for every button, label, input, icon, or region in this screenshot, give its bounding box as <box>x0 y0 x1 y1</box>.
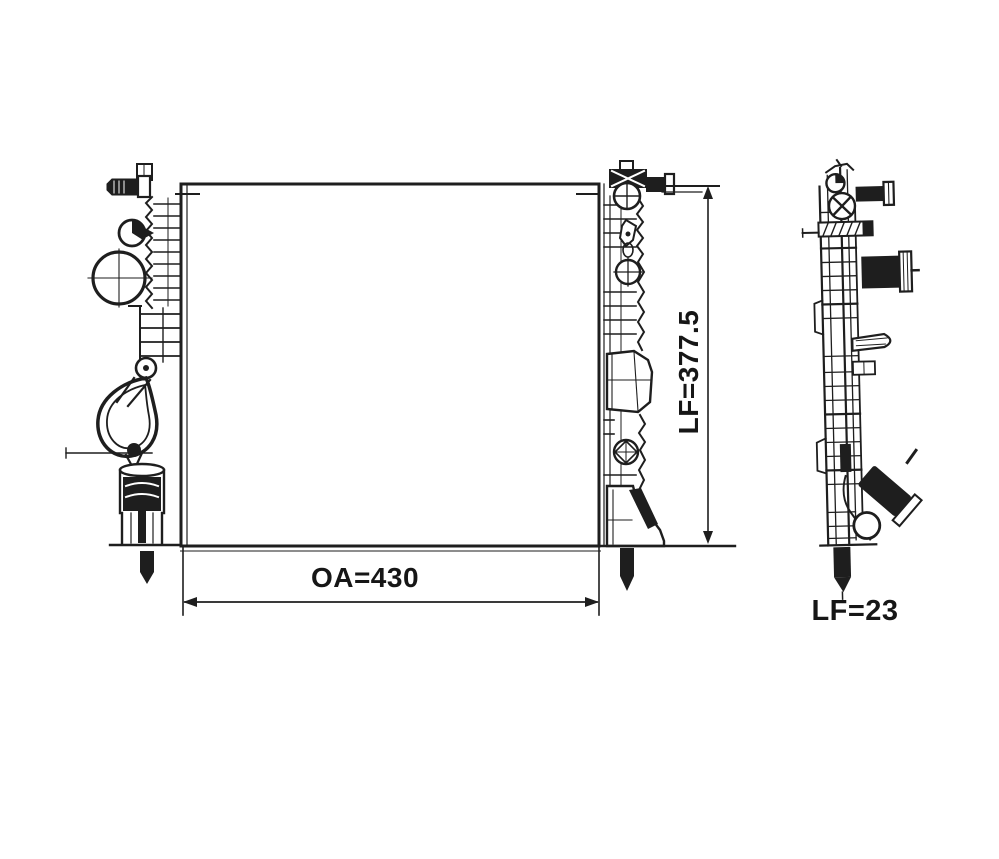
side-top-assembly <box>826 159 894 220</box>
depth-dimension-label: LF=23 <box>795 597 915 626</box>
arrow-right <box>585 597 599 607</box>
core-height-dimension-label: LF=377.5 <box>674 297 704 447</box>
drain-valve <box>120 464 164 544</box>
drawing-svg <box>0 0 999 859</box>
side-pipe-stub <box>856 186 884 202</box>
clip-sensor <box>620 220 636 257</box>
mid-bracket <box>607 351 652 412</box>
hatch-band <box>802 221 872 237</box>
arrow-left <box>183 597 197 607</box>
side-bottom-peg <box>834 577 851 592</box>
right-bottom-peg <box>620 576 634 591</box>
foot-bracket <box>607 486 664 546</box>
arrow-up <box>703 186 713 199</box>
lower-port <box>614 440 638 464</box>
right-tank <box>604 161 674 591</box>
radiator-technical-drawing: OA=430 LF=377.5 LF=23 <box>0 0 999 859</box>
radiator-core <box>176 184 604 551</box>
overall-width-dimension-label: OA=430 <box>295 564 435 592</box>
reservoir-block <box>861 251 919 292</box>
left-bottom-peg <box>140 551 154 584</box>
threaded-connector <box>107 176 150 197</box>
outlet-connector <box>646 174 674 194</box>
left-tank <box>66 164 181 584</box>
inlet-port <box>88 249 152 307</box>
arrow-down <box>703 531 713 544</box>
side-view <box>801 158 927 600</box>
front-view <box>66 161 674 591</box>
